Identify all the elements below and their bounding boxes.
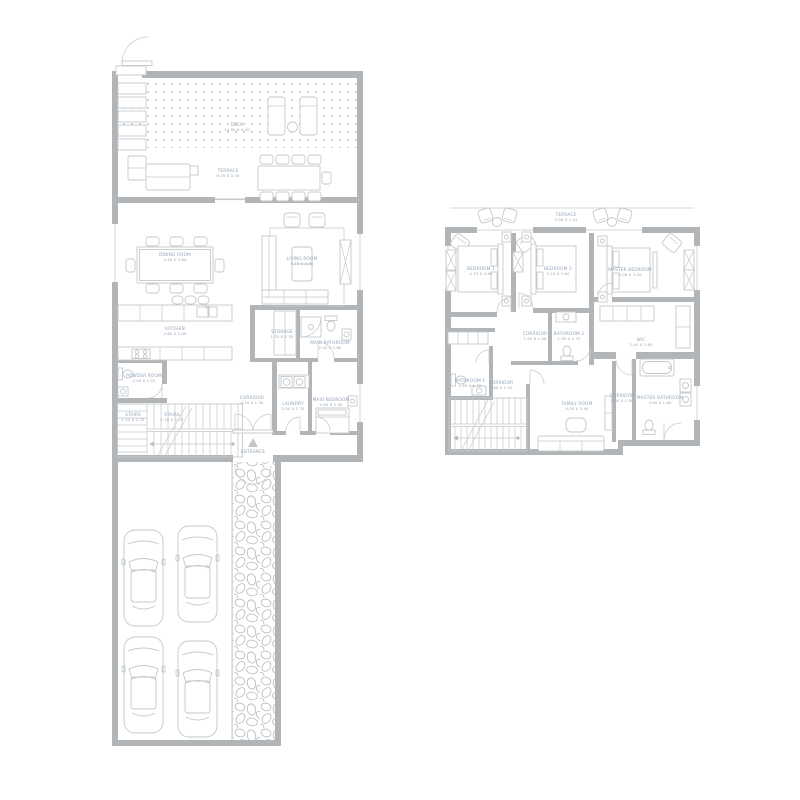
chair	[292, 192, 305, 201]
chair	[170, 237, 183, 246]
nightstand	[598, 292, 607, 302]
wardrobe	[684, 250, 694, 270]
floor-plan-canvas: DECK 14.90 X 4.40 TERRACE 6.70 X 3.40 DI…	[0, 0, 800, 800]
dining-room	[126, 237, 224, 293]
car	[122, 530, 165, 626]
first-floor-plan: TERRACE 5.06 X 1.24 BEDROOM 1 4.10 X 3.6…	[445, 207, 700, 455]
toilet	[563, 346, 571, 356]
room-dims: 4.20 X 1.30	[241, 401, 264, 405]
room-dims: 2.00 X 1.55	[133, 379, 156, 383]
wardrobe	[446, 250, 456, 270]
room-dims: 4.10 X 3.60	[547, 272, 570, 276]
garage	[122, 526, 219, 737]
bar-stool	[198, 296, 209, 304]
deck-planters	[118, 83, 146, 150]
maid-bathroom	[301, 316, 351, 358]
toilet	[645, 420, 653, 430]
room-dims: 3.00 X 1.60	[649, 401, 672, 405]
room-dims: 1.80 X 1.70	[459, 384, 482, 388]
nightstand	[522, 296, 531, 306]
ground-floor-plan: DECK 14.90 X 4.40 TERRACE 6.70 X 3.40 DI…	[112, 37, 363, 746]
outdoor-sofa	[128, 156, 198, 190]
room-dims: 4.00 X 3.40	[566, 407, 589, 411]
bar-stool	[185, 296, 196, 304]
chair	[260, 155, 273, 164]
sink	[680, 379, 691, 392]
armchair	[309, 213, 325, 227]
staircase	[117, 404, 243, 457]
car	[176, 526, 219, 622]
wardrobe	[684, 270, 694, 290]
room-dims: 4.80 X 3.00	[164, 332, 187, 336]
corridor-doors	[616, 359, 632, 375]
chair	[194, 237, 207, 246]
room-label: ENTRANCE	[241, 449, 266, 455]
staircase	[449, 398, 527, 451]
room-dims: 1.90 X 1.06	[611, 399, 634, 403]
room-dims: 1.95 X 1.06	[524, 337, 547, 341]
room-dims: 2.00 X 1.70	[282, 407, 305, 411]
sink	[342, 329, 351, 340]
toilet	[325, 316, 337, 321]
room-dims: 2.00 X 1.60	[319, 346, 342, 350]
chair	[146, 237, 159, 246]
wardrobe	[513, 252, 523, 272]
bed	[316, 408, 349, 433]
room-dims: 1.70 X 1.50	[271, 335, 294, 339]
nightstand	[522, 232, 531, 242]
room-dims: 4.10 X 3.60	[470, 272, 493, 276]
chair	[276, 192, 289, 201]
room-dims: 5.10 X 4.80	[291, 262, 314, 266]
car	[176, 641, 219, 737]
room-dims: 5.40 X 3.60	[164, 258, 187, 262]
bed-bench	[653, 252, 657, 288]
chair	[308, 192, 321, 201]
bar-stool	[172, 296, 183, 304]
nightstand	[598, 236, 607, 246]
chair	[170, 284, 183, 293]
vanity	[556, 312, 576, 322]
armchair	[284, 213, 300, 227]
room-dims: 1.20 X 2.70	[161, 418, 184, 422]
room-dims: 1.95 X 1.70	[558, 337, 581, 341]
armchair	[661, 232, 682, 253]
powder-room	[118, 368, 162, 398]
terrace-chair	[477, 207, 493, 223]
chair	[308, 155, 321, 164]
wardrobe	[446, 271, 456, 291]
room-dims: 14.90 X 4.40	[224, 128, 250, 132]
chair	[146, 284, 159, 293]
coffee-table	[566, 418, 586, 432]
room-dims: 1.20 X 2.70	[122, 418, 145, 422]
sink	[118, 387, 128, 396]
room-dims: 6.70 X 3.40	[217, 174, 240, 178]
terrace-chair	[616, 207, 632, 223]
walkway-edge	[232, 462, 233, 740]
deck-gate	[116, 37, 152, 75]
terrace-chair	[501, 207, 517, 223]
chair	[260, 192, 273, 201]
nightstand	[502, 232, 511, 242]
room-dims: 2.60 X 2.30	[320, 403, 343, 407]
chair	[276, 155, 289, 164]
chair	[194, 284, 207, 293]
car	[122, 637, 165, 733]
deck-hatch	[117, 77, 357, 148]
floor-plan-page: DECK 14.90 X 4.40 TERRACE 6.70 X 3.40 DI…	[0, 0, 800, 800]
room-dims: 2.40 X 1.60	[630, 343, 653, 347]
terrace-chair	[592, 207, 608, 223]
toilet	[118, 368, 123, 380]
chair	[292, 155, 305, 164]
entrance-arrow	[248, 438, 258, 447]
room-dims: 4.00 X 3.20	[619, 273, 642, 277]
outdoor-dining-set	[258, 155, 331, 201]
pebble-walkway	[233, 462, 275, 740]
nightstand	[502, 296, 511, 306]
sofa	[538, 436, 604, 451]
room-dims: 1.80 X 1.20	[490, 386, 513, 390]
room-dims: 5.06 X 1.24	[555, 218, 578, 222]
